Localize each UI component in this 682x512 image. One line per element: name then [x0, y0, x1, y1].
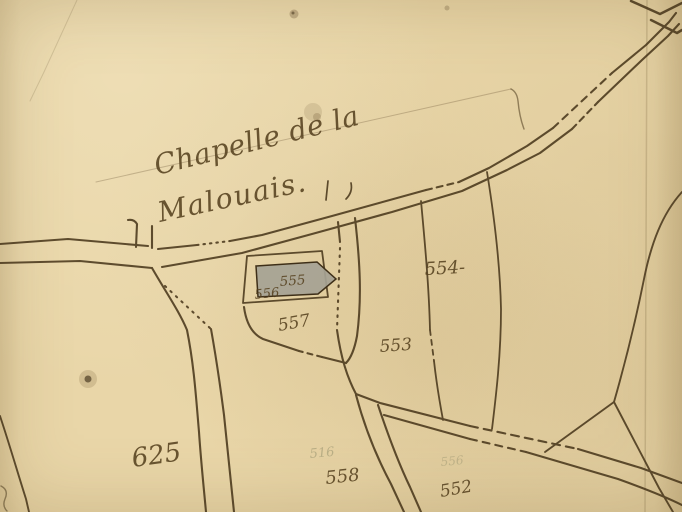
boundary-553-554: [434, 361, 443, 420]
chapel-lane-east-edge: [346, 218, 360, 363]
main-road-lower-edge: [598, 24, 679, 102]
bottom-road-lower-edge: [384, 415, 470, 439]
main-road-upper-edge: [612, 13, 676, 73]
parcel-label-558: 558: [324, 464, 360, 488]
bottom-lane-east-edge: [378, 405, 421, 512]
boundary-east-curve-south: [614, 402, 673, 512]
paper-scratch: [30, 0, 77, 101]
main-road-upper-edge: [158, 245, 197, 249]
ghost-labels: 516 556: [309, 445, 464, 469]
boundary-east-curve: [614, 192, 682, 402]
parcel-label-557: 557: [276, 311, 312, 336]
boundary-east-branch: [545, 402, 614, 452]
map-drawing: Chapelle de la Malouais. 554- 553 555 55…: [0, 0, 682, 512]
west-road-lower-edge: [0, 261, 152, 268]
boundary-554-east: [487, 172, 501, 429]
ghost-label-2: 556: [440, 453, 464, 469]
boundary-553-554-dashed: [430, 330, 434, 361]
ghost-label-1: 516: [309, 445, 335, 462]
bottom-road-upper-dashed: [470, 426, 578, 449]
bottom-road-lower-edge: [526, 452, 682, 505]
main-road-upper-dashed: [426, 182, 459, 190]
stain-spot: [85, 376, 92, 383]
parcel-label-556: 556: [254, 285, 280, 303]
main-road-upper-dotted: [197, 241, 230, 245]
lane-entrance-marks: [326, 181, 351, 200]
junction-stub-left: [128, 220, 137, 247]
boundary-557-558-dashed: [299, 351, 322, 357]
parcel-label-625: 625: [130, 437, 183, 474]
map-title-line1: Chapelle de la: [151, 99, 363, 182]
map-title: Chapelle de la Malouais.: [151, 99, 363, 229]
stain: [445, 6, 450, 11]
cadastral-map: Chapelle de la Malouais. 554- 553 555 55…: [0, 0, 682, 512]
paper-fold-line: [645, 0, 647, 512]
chapel-lane-west-edge: [338, 222, 340, 242]
boundary-southwest-curve: [0, 416, 29, 512]
parcel-label-555: 555: [279, 272, 306, 290]
stain-spot: [292, 12, 295, 15]
bottom-road-upper-edge: [578, 449, 682, 483]
pencil-boundary-hook: [511, 89, 524, 129]
south-road-east-edge-dotted: [165, 286, 211, 329]
west-road-upper-edge: [0, 239, 148, 246]
parcel-label-552: 552: [438, 477, 473, 502]
main-road-upper-edge: [459, 128, 553, 182]
parcel-label-553: 553: [379, 335, 413, 357]
south-road-west-edge: [152, 268, 206, 512]
chapel-lane-west-dotted: [337, 248, 340, 330]
south-road-east-edge: [211, 329, 234, 512]
parcel-label-554: 554-: [424, 257, 465, 280]
bottom-road-lower-dashed: [470, 439, 526, 452]
edge-squiggle: [1, 486, 7, 511]
main-road-upper-dashed: [553, 73, 612, 128]
crossroad-chevron-north: [631, 1, 682, 14]
bottom-road-upper-edge: [356, 394, 470, 426]
